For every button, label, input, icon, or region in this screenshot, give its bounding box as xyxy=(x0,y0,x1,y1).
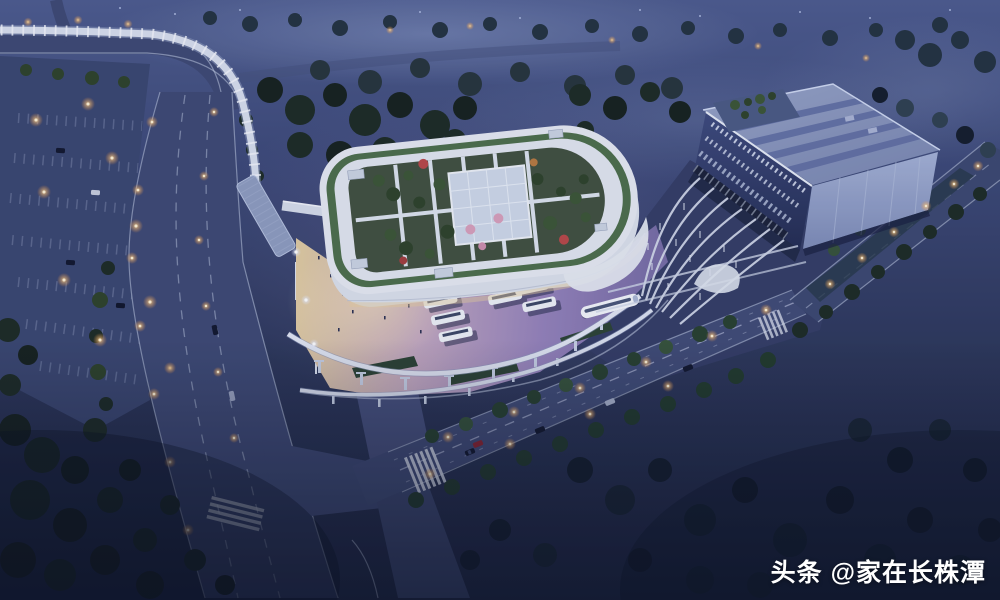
atmosphere-overlays xyxy=(0,0,1000,600)
aerial-night-rendering: 头条 @家在长株潭 xyxy=(0,0,1000,600)
watermark-text: 头条 @家在长株潭 xyxy=(771,553,986,589)
scene-canvas xyxy=(0,0,1000,600)
